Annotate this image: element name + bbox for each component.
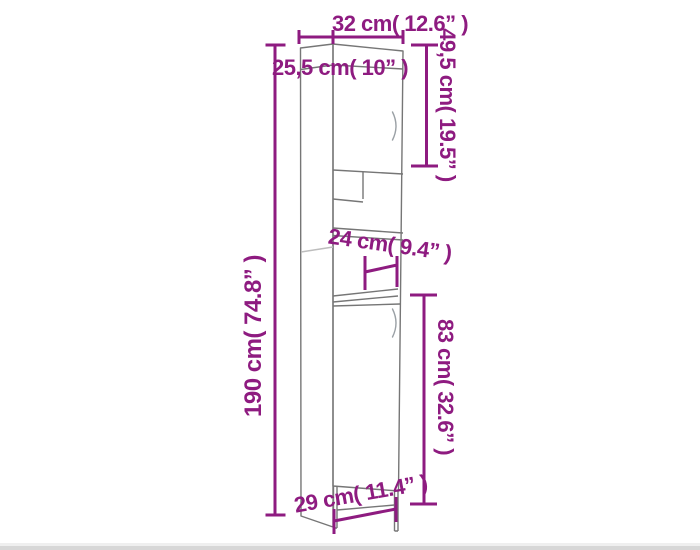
dimension-label-top-depth: 25,5 cm( 10” ) — [272, 55, 408, 80]
niche-back-shelf-line — [333, 199, 363, 202]
dimension-label-inner-shelf-depth: 24 cm( 9.4” ) — [327, 224, 454, 266]
page-bottom-edge-dark — [0, 546, 700, 550]
dimension-annotations: 32 cm( 12.6” ) 25,5 cm( 10” ) 49,5 cm( 1… — [240, 11, 468, 534]
lower-door-top-edge — [333, 304, 400, 306]
dimension-line-total-height — [266, 45, 286, 515]
upper-door-handle-icon — [393, 112, 397, 140]
cabinet-side-panel — [301, 44, 334, 527]
dimension-label-upper-door-height: 49,5 cm( 19.5” ) — [435, 28, 460, 182]
dimension-line-upper-door-height — [411, 45, 438, 166]
dimension-label-lower-door-height: 83 cm( 32.6” ) — [433, 319, 458, 455]
cabinet-drawing — [301, 44, 404, 531]
dimension-line-inner-shelf-depth — [365, 256, 397, 290]
upper-door-bottom-edge — [333, 170, 403, 174]
niche-bottom-shelf-edges — [333, 289, 398, 302]
dimension-diagram: 32 cm( 12.6” ) 25,5 cm( 10” ) 49,5 cm( 1… — [0, 0, 700, 550]
product-dimension-image: 32 cm( 12.6” ) 25,5 cm( 10” ) 49,5 cm( 1… — [0, 0, 700, 550]
lower-door-handle-icon — [393, 309, 397, 337]
dimension-label-base-width: 29 cm( 11.4” ) — [292, 470, 429, 518]
dimension-label-total-height: 190 cm( 74.8” ) — [240, 255, 267, 417]
